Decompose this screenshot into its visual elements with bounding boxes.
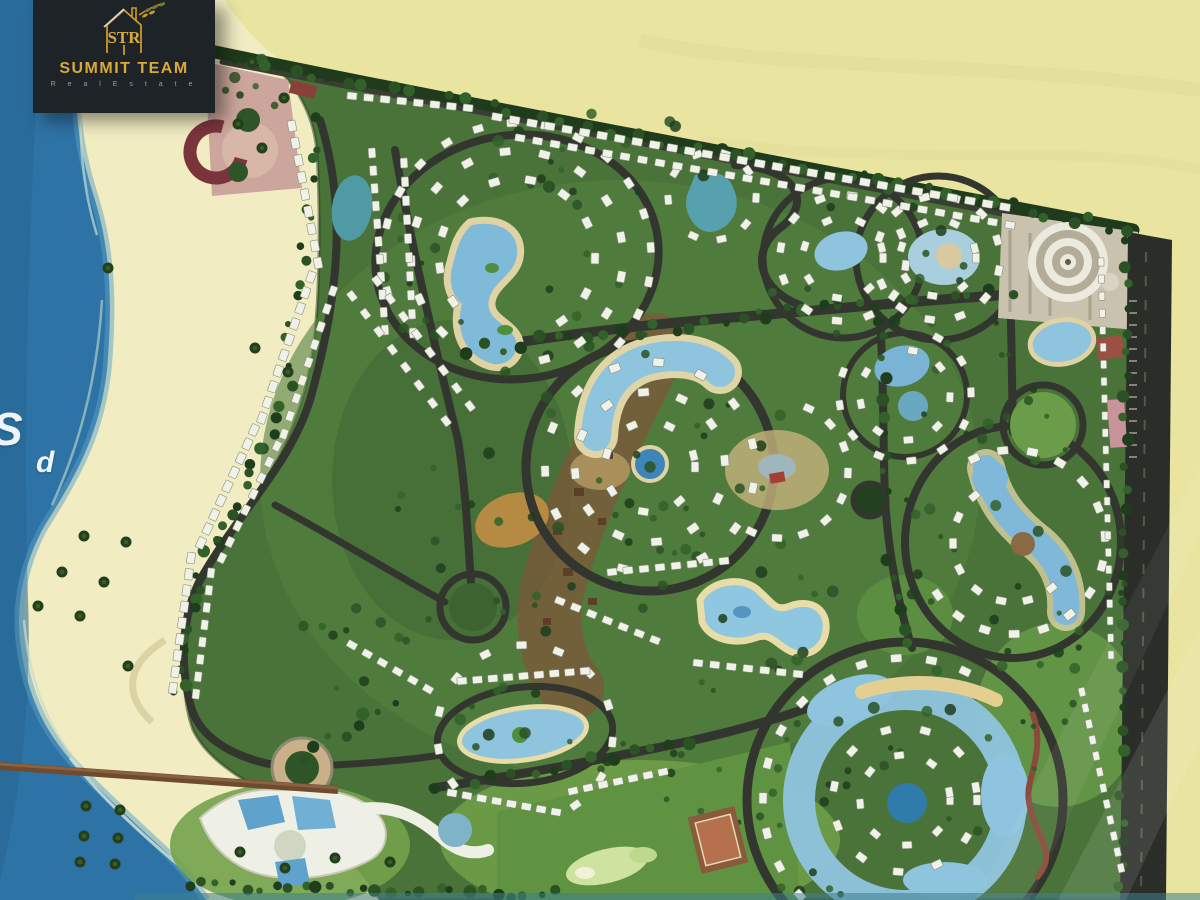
bottom-water-strip — [135, 893, 1200, 900]
landmark-plaza — [998, 213, 1138, 330]
masterplan-map — [0, 0, 1200, 900]
brand-name: SUMMIT TEAM — [59, 61, 188, 77]
masterplan-screenshot: STR SUMMIT TEAM R e a l E s t a t e S d — [0, 0, 1200, 900]
central-pool — [887, 783, 927, 823]
water-watermark-letter: d — [36, 446, 54, 480]
brand-tagline: R e a l E s t a t e — [51, 81, 198, 88]
logo-card: STR SUMMIT TEAM R e a l E s t a t e — [33, 0, 215, 113]
mud-pond — [1011, 532, 1035, 556]
water-watermark-letter: S — [0, 402, 23, 456]
club-pond — [438, 813, 472, 847]
logo-house-icon: STR — [78, 2, 170, 60]
logo-monogram: STR — [107, 28, 141, 47]
